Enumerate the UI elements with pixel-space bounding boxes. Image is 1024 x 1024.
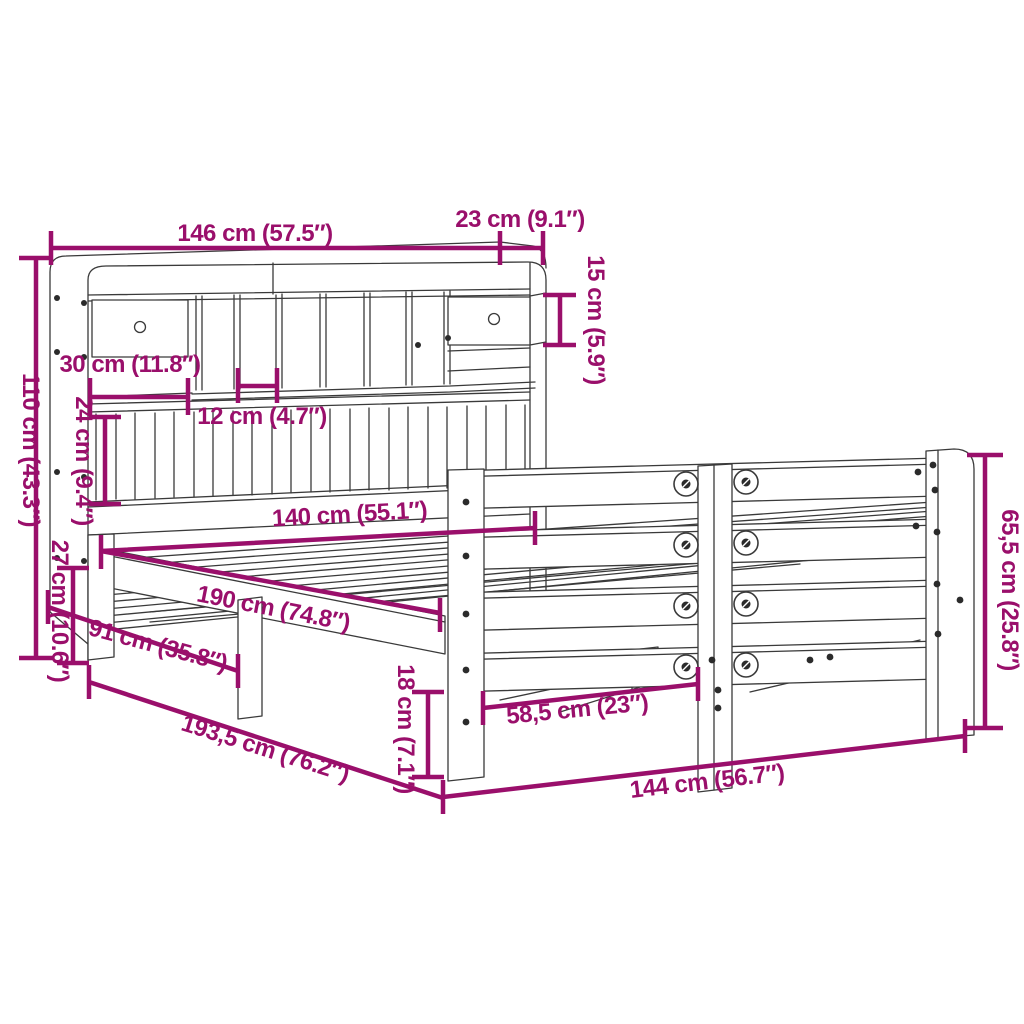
dim-label-top-shelf-height: 15 cm (5.9″)	[582, 255, 609, 385]
dim-label-under-bed-clearance: 18 cm (7.1″)	[392, 664, 419, 794]
footboard-left-post	[448, 469, 484, 781]
left-drawer	[92, 300, 188, 357]
dim-label-side-shelf-depth: 91 cm (35.8″)	[86, 614, 231, 677]
dim-label-mattress-width: 140 cm (55.1″)	[271, 497, 428, 533]
dim-label-total-length: 193,5 cm (76.2″)	[178, 710, 352, 788]
dim-under-bed-clearance: 18 cm (7.1″)	[392, 664, 444, 794]
dim-label-headboard-top-depth: 23 cm (9.1″)	[455, 206, 585, 233]
footboard-middle-post	[698, 464, 732, 792]
dim-headboard-top-depth: 23 cm (9.1″)	[455, 206, 585, 265]
dim-label-slat-panel-height: 24 cm (9.4″)	[70, 396, 97, 526]
dim-label-footboard-height: 65,5 cm (25.8″)	[996, 509, 1023, 670]
dim-label-headboard-total-width: 146 cm (57.5″)	[177, 220, 332, 247]
dim-label-leg-spacing: 58,5 cm (23″)	[505, 689, 649, 730]
bed-dimension-drawing: 146 cm (57.5″) 23 cm (9.1″) 15 cm (5.9″)…	[0, 0, 1024, 1024]
dim-headboard-total-width: 146 cm (57.5″)	[51, 220, 500, 265]
dim-label-shelf-opening-width: 30 cm (11.8″)	[59, 351, 200, 378]
dim-footboard-height: 65,5 cm (25.8″)	[967, 455, 1023, 728]
footboard-drawing	[448, 449, 974, 792]
dim-label-compartment-width: 12 cm (4.7″)	[197, 403, 327, 430]
dim-total-length: 193,5 cm (76.2″)	[89, 665, 443, 798]
dim-label-headboard-height: 110 cm (43.3″)	[17, 373, 44, 527]
dim-top-shelf-height: 15 cm (5.9″)	[543, 255, 609, 385]
product-diagram-stage: 146 cm (57.5″) 23 cm (9.1″) 15 cm (5.9″)…	[0, 0, 1024, 1024]
